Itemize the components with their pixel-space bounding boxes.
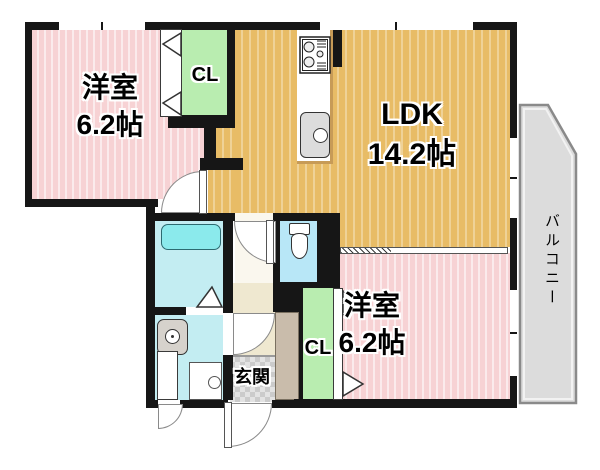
window-bedroom-balcony-mullion bbox=[510, 332, 517, 334]
wall-bottom-b bbox=[180, 400, 228, 408]
washbasin-drain bbox=[171, 335, 174, 338]
wall-closet-top-right bbox=[227, 22, 235, 128]
bedroom-top-name: 洋室 bbox=[30, 70, 190, 107]
window-top-ldk-mullion bbox=[395, 22, 397, 30]
kitchen-sink-faucet bbox=[313, 128, 328, 143]
label-closet-top: CL bbox=[183, 62, 227, 88]
window-ldk-balcony-mullion bbox=[510, 177, 517, 179]
wall-block-left bbox=[146, 199, 155, 408]
wall-block-top-a bbox=[146, 213, 235, 221]
closet-bottom-text: CL bbox=[305, 337, 332, 359]
door-service-swing bbox=[158, 404, 183, 429]
balcony-text: バルコニー bbox=[543, 213, 560, 308]
ldk-area: 14.2帖 bbox=[330, 135, 494, 175]
bathtub-icon bbox=[161, 224, 221, 250]
door-entrance-panel bbox=[224, 402, 232, 448]
bedroom-bottom-name: 洋室 bbox=[292, 288, 452, 325]
label-balcony: バルコニー bbox=[531, 162, 561, 358]
wall-bottom-right bbox=[294, 399, 517, 408]
ldk-name: LDK bbox=[330, 95, 494, 135]
entrance-text: 玄関 bbox=[234, 367, 270, 387]
bedroom-top-area: 6.2帖 bbox=[30, 107, 190, 144]
door-vestibule-panel bbox=[266, 220, 274, 264]
room-ldk-corridor2 bbox=[207, 170, 235, 214]
label-closet-bottom: CL bbox=[296, 335, 340, 361]
floor-plan: 洋室 6.2帖 LDK 14.2帖 洋室 6.2帖 CL CL 玄関 バルコニー bbox=[0, 0, 600, 470]
closet-top-text: CL bbox=[192, 64, 219, 86]
toilet-bowl bbox=[291, 233, 308, 259]
wall-kitchen-stub bbox=[333, 28, 342, 67]
label-entrance: 玄関 bbox=[226, 366, 278, 390]
service-cabinet bbox=[157, 351, 178, 400]
washing-machine-drain bbox=[208, 376, 221, 389]
gas-stove-icon bbox=[299, 36, 331, 74]
wall-corridor-stub bbox=[200, 158, 243, 170]
wall-bottom-a bbox=[146, 400, 158, 408]
door-bedroom-top-panel bbox=[199, 170, 207, 214]
window-top-left-mullion bbox=[101, 22, 103, 30]
wall-bedroom-top-bottom bbox=[25, 199, 158, 207]
bathroom-door-triangle-icon bbox=[194, 285, 224, 308]
wall-hall-left-a bbox=[223, 221, 233, 313]
label-bedroom-top: 洋室 6.2帖 bbox=[30, 70, 190, 144]
sliding-partition-hatch bbox=[341, 248, 391, 253]
door-entrance-swing bbox=[228, 403, 272, 447]
label-ldk: LDK 14.2帖 bbox=[330, 95, 494, 174]
wall-bath-divider bbox=[155, 307, 186, 315]
wall-cl-ldk bbox=[330, 247, 340, 288]
